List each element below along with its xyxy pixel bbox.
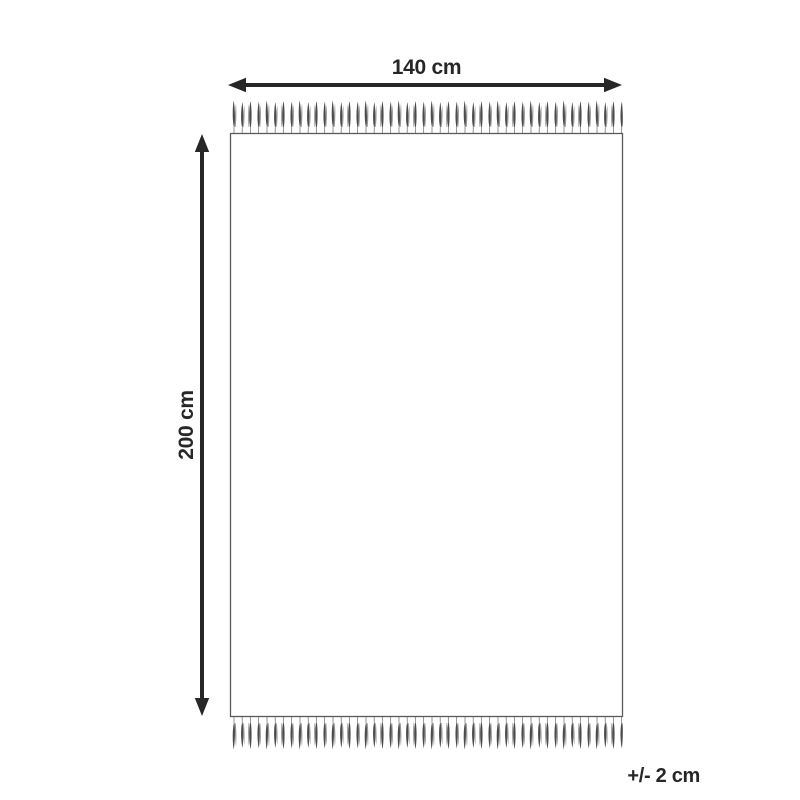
height-dimension-label: 200 cm xyxy=(175,365,199,485)
width-dimension-label: 140 cm xyxy=(230,56,623,80)
rug-body-outline xyxy=(231,134,623,717)
tolerance-label: +/- 2 cm xyxy=(627,765,700,788)
rug-fringe-bottom xyxy=(230,717,623,753)
rug-fringe-top xyxy=(230,97,623,133)
rug-dimension-diagram: 140 cm 200 cm +/- 2 cm xyxy=(0,0,800,800)
diagram-canvas xyxy=(0,0,800,800)
